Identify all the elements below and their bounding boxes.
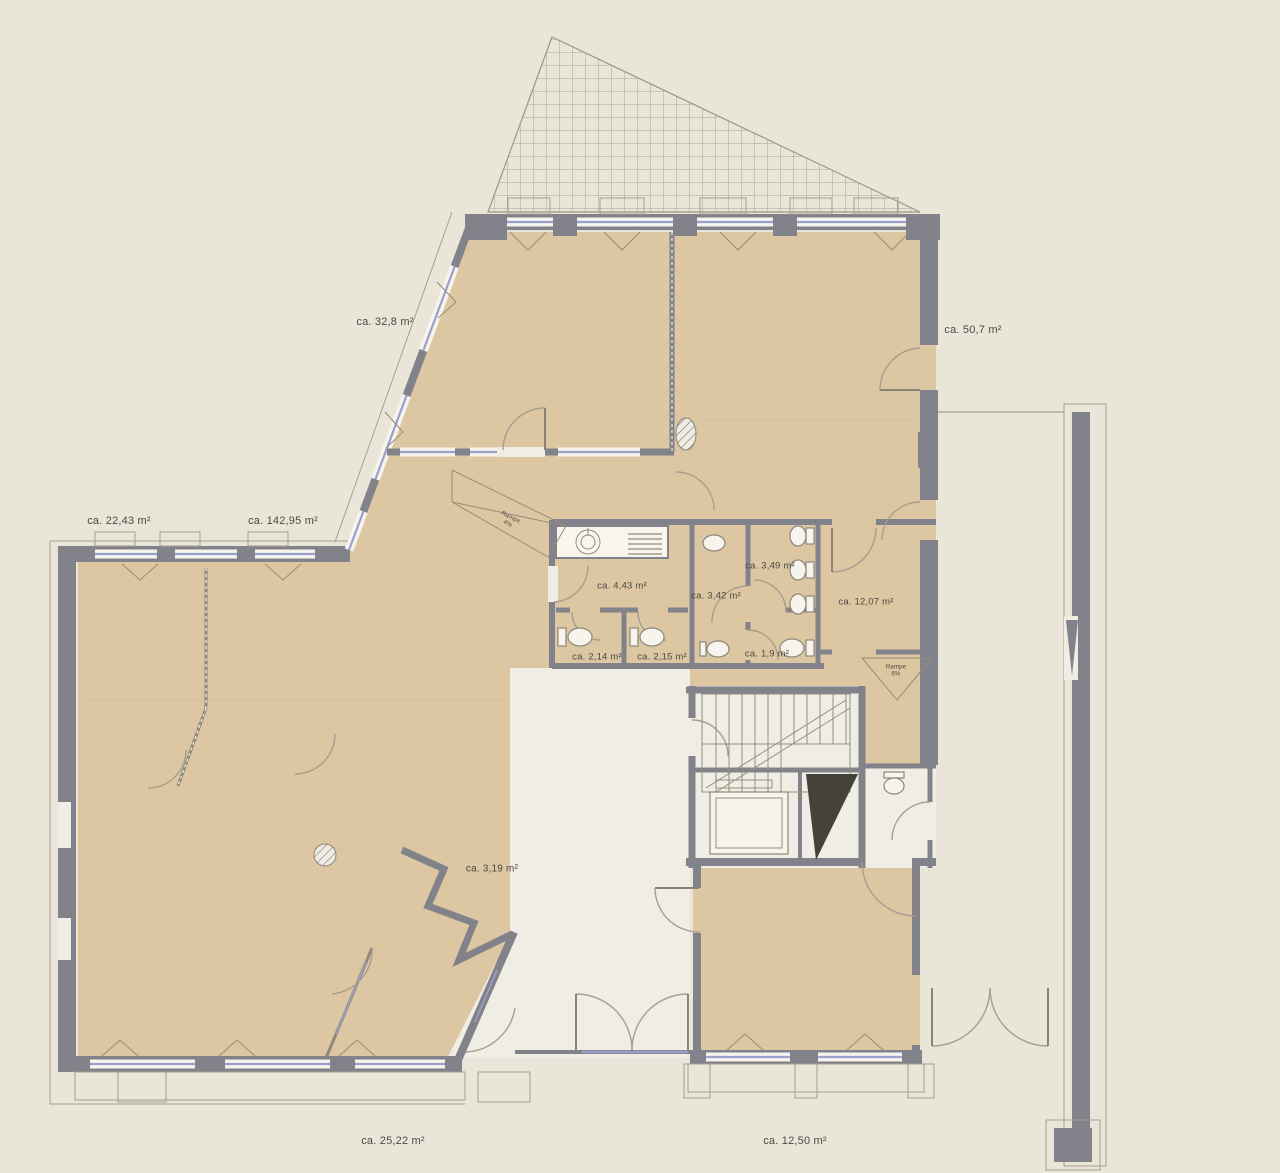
floor-plan: ca. 32,8 m² ca. 50,7 m² ca. 22,43 m² ca.… bbox=[0, 0, 1280, 1173]
label-wc-stall-1: ca. 2,14 m² bbox=[572, 652, 622, 663]
label-wc-right: ca. 3,49 m² bbox=[745, 561, 795, 572]
column-icon bbox=[676, 418, 696, 450]
label-top-right-room: ca. 50,7 m² bbox=[944, 324, 1001, 336]
label-bottom-left-room: ca. 25,22 m² bbox=[361, 1135, 425, 1147]
label-wall-niche: ca. 3,19 m² bbox=[466, 864, 518, 875]
label-wc-small: ca. 1,9 m² bbox=[745, 649, 789, 660]
label-main-area: ca. 142,95 m² bbox=[248, 515, 318, 527]
label-wc-middle: ca. 3,42 m² bbox=[691, 591, 741, 602]
label-ramp-side: Rampe6% bbox=[886, 665, 906, 678]
label-wc-stall-2: ca. 2,15 m² bbox=[637, 652, 687, 663]
label-left-side-room: ca. 22,43 m² bbox=[87, 515, 151, 527]
label-side-room: ca. 12,07 m² bbox=[838, 597, 893, 608]
label-top-left-room: ca. 32,8 m² bbox=[356, 316, 413, 328]
ramp-slope: 6% bbox=[891, 671, 900, 677]
kitchenette bbox=[556, 526, 668, 558]
column-icon bbox=[314, 844, 336, 866]
label-wc-vestibule: ca. 4,43 m² bbox=[597, 581, 647, 592]
ramp-word: Rampe bbox=[886, 665, 906, 671]
label-bottom-right-room: ca. 12,50 m² bbox=[763, 1135, 827, 1147]
